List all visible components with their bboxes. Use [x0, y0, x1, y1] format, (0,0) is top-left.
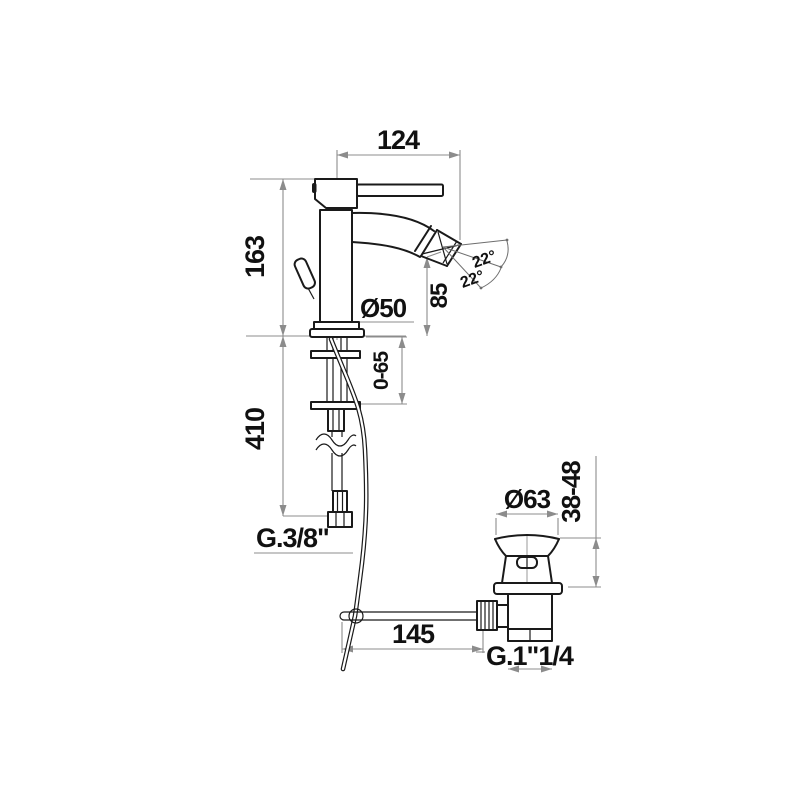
technical-drawing-canvas: 124 163 410 85 0-65 Ø50 G.3/8" — [0, 0, 800, 800]
dim-deck-range: 0-65 — [361, 337, 407, 404]
dim-label-38-48: 38-48 — [556, 461, 586, 523]
supply-hose — [316, 431, 356, 527]
faucet-head — [315, 179, 357, 208]
dim-label-22-up: 22° — [470, 248, 499, 272]
drain-slot — [517, 557, 537, 568]
temp-indicator-dot — [312, 183, 317, 193]
dim-label-85: 85 — [426, 283, 453, 308]
dim-label-0-65: 0-65 — [370, 351, 393, 390]
dim-body-height: 163 — [240, 179, 315, 336]
mounting-nut — [311, 402, 360, 409]
dim-label-d63: Ø63 — [504, 484, 551, 514]
dim-hose-length: 410 — [240, 336, 332, 516]
drain-dome-right — [548, 539, 559, 556]
dim-label-g114: G.1"1/4 — [486, 641, 574, 671]
drain-assembly — [477, 535, 562, 641]
base-collar — [314, 322, 359, 329]
lever-handle — [357, 185, 443, 197]
drain-dome-left — [495, 539, 506, 556]
drain-side-port — [497, 605, 508, 627]
dim-label-22-down: 22° — [458, 268, 487, 292]
dim-label-g38: G.3/8" — [256, 523, 329, 553]
dim-waste-cap-diameter: Ø63 — [496, 484, 558, 535]
hose-nut — [328, 512, 352, 527]
dim-label-163: 163 — [240, 235, 270, 278]
threaded-shank — [328, 409, 344, 431]
base-flange — [310, 329, 364, 337]
faucet-body — [320, 210, 352, 323]
rod-clamp-nut — [477, 601, 497, 630]
drain-body — [508, 594, 552, 629]
spout-top-edge — [352, 213, 434, 231]
bidet-mixer-drawing: 124 163 410 85 0-65 Ø50 G.3/8" — [0, 0, 800, 800]
dim-label-410: 410 — [240, 408, 270, 450]
hose-break-lower — [316, 444, 356, 456]
dim-label-145: 145 — [392, 619, 435, 649]
dim-waste-height-range: 38-48 — [556, 456, 601, 587]
dim-waste-thread: G.1"1/4 — [476, 641, 574, 671]
dim-label-d50: Ø50 — [360, 293, 407, 323]
dim-label-124: 124 — [377, 125, 420, 155]
pop-up-knob — [293, 257, 317, 299]
spout-bottom-edge — [352, 242, 420, 257]
hose-end-thread — [333, 491, 347, 512]
drain-flange — [494, 583, 562, 594]
